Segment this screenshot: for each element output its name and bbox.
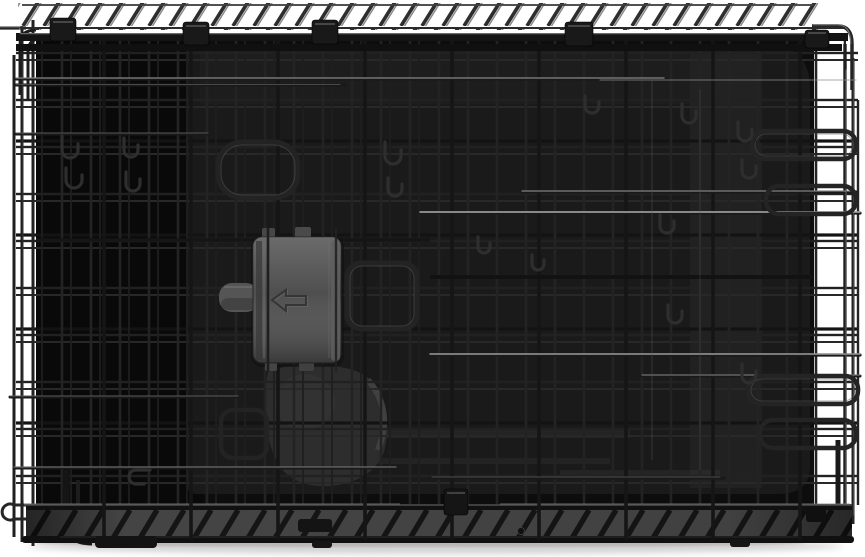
top-rail-bar-2 [16, 44, 842, 51]
serrated-zigzag-wires [18, 3, 818, 30]
foot [312, 541, 332, 548]
dog-crate-product-photo [0, 0, 865, 557]
corner-foot [95, 536, 157, 548]
product-photo-stage [0, 0, 865, 557]
foot [730, 539, 750, 547]
slide-tab-shade [221, 298, 257, 310]
wires-over-band [40, 500, 846, 540]
corner-clamp [806, 508, 826, 522]
top-rail-bar [16, 33, 848, 41]
vertical-heavy-wires [40, 38, 846, 508]
band-clamp [298, 519, 332, 532]
band-bolt [518, 528, 525, 535]
latch-body-shading [253, 237, 341, 363]
latch-left-shade [256, 241, 262, 360]
wire-grid [16, 38, 858, 508]
